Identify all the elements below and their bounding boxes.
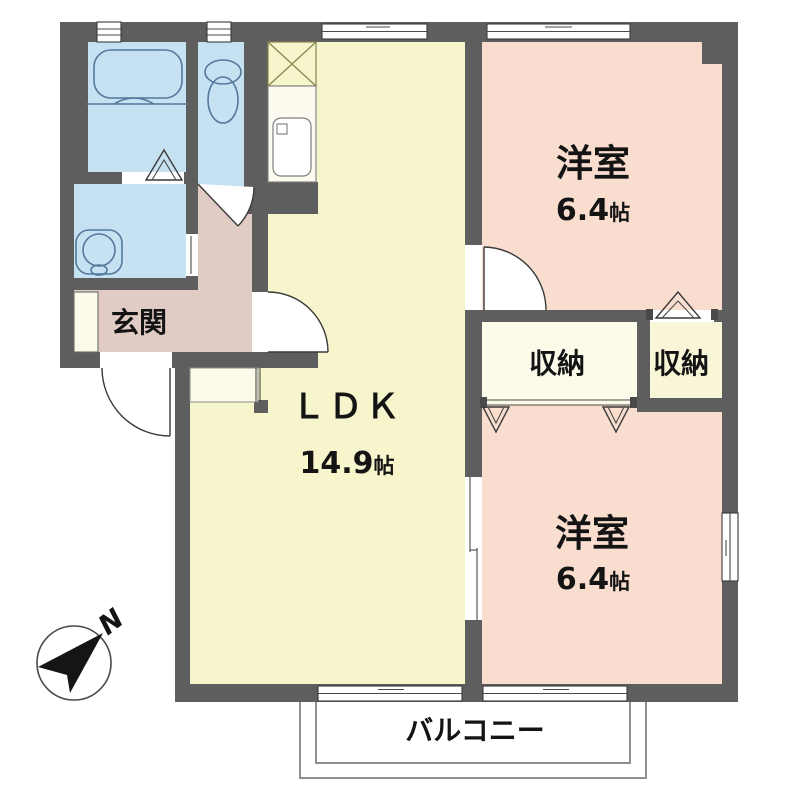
- washroom-floor: [72, 182, 188, 280]
- wall-hall-right: [252, 214, 268, 292]
- floor-plan: { "plan": { "type": "apartment-floor-pla…: [0, 0, 794, 797]
- toilet-room-floor: [196, 40, 246, 186]
- ldk-closet: [190, 368, 260, 402]
- bathroom-floor: [86, 40, 188, 174]
- opening-entrance-door: [100, 352, 172, 368]
- entrance-label: 玄関: [111, 306, 167, 339]
- window-room-top: [487, 24, 630, 39]
- shoe-cabinet: [74, 292, 98, 352]
- wall-right: [722, 22, 738, 702]
- compass: N: [37, 603, 130, 700]
- window-kitchen-top: [322, 24, 427, 39]
- opening-storage-right-door: [650, 310, 714, 322]
- wall-left-upper: [60, 22, 74, 368]
- balcony-label: バルコニー: [405, 714, 544, 747]
- wall-bath-right: [186, 42, 198, 184]
- room-top-name: 洋室: [556, 142, 630, 185]
- wall-storage-mid: [637, 315, 650, 410]
- door-entrance: [102, 368, 170, 436]
- wall-wash-bottom: [60, 278, 198, 290]
- opening-sliding-door: [465, 477, 482, 620]
- wall-ldk-left: [175, 358, 190, 688]
- storage-left-label: 収納: [529, 347, 585, 380]
- kitchen-sink: [268, 86, 316, 182]
- storage-right-label: 収納: [653, 347, 709, 380]
- floor-plan-svg: N 洋室 6.4帖 洋室 6.4帖 ＬＤＫ 14.9帖 収納 収納 玄関 バルコ…: [0, 0, 794, 797]
- opening-washroom-door: [186, 234, 198, 276]
- window-ldk-balcony: [318, 686, 462, 701]
- wall-storage-bottom-right: [637, 398, 738, 412]
- vent-window-toilet: [207, 22, 231, 42]
- window-room-bottom-right: [722, 513, 738, 581]
- opening-ldk-door: [252, 292, 268, 352]
- window-room-bottom-balcony: [483, 686, 627, 701]
- opening-room-top-door: [465, 245, 482, 310]
- wall-kitchen-stub: [252, 182, 318, 214]
- wall-wash-right-upper: [186, 184, 198, 236]
- wall-bath-left: [74, 42, 88, 184]
- wall-pillar-notch: [702, 42, 738, 64]
- ldk-name: ＬＤＫ: [292, 387, 403, 427]
- vent-window-bathroom: [97, 22, 121, 42]
- room-bottom-name: 洋室: [555, 512, 629, 555]
